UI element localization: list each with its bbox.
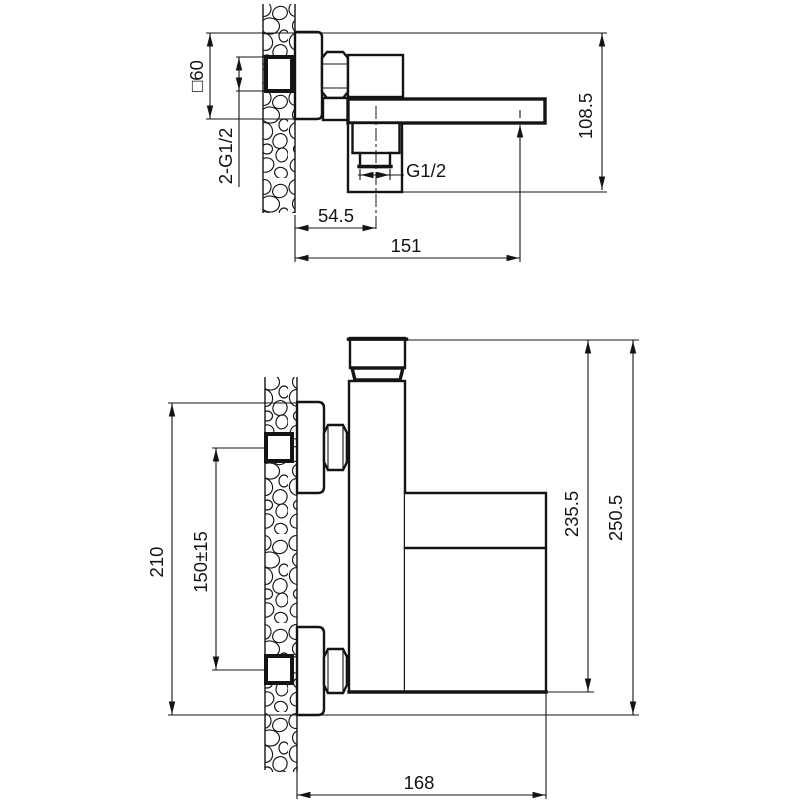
dim-inlet-thread-label: 2-G1/2 bbox=[215, 128, 236, 185]
dim-body-height-label: 235.5 bbox=[561, 491, 582, 537]
dim-wall-plate-span-label: 210 bbox=[146, 547, 167, 578]
extension-lines bbox=[212, 448, 266, 670]
top-view: □60 2-G1/2 G1/2 108.5 bbox=[186, 4, 607, 262]
dimension-inlet-thread: 2-G1/2 bbox=[215, 57, 265, 187]
body-upper-block bbox=[348, 55, 403, 97]
inlet-fitting-square bbox=[266, 57, 292, 91]
dimension-spout-reach-top: 151 bbox=[295, 235, 520, 258]
dim-overall-height-front-label: 250.5 bbox=[605, 495, 626, 541]
wall-section-hatch bbox=[263, 4, 295, 213]
dim-inlet-spacing-label: 150±15 bbox=[190, 531, 211, 593]
spout-bar bbox=[348, 99, 545, 123]
mounting-nut bbox=[322, 52, 348, 98]
handle-neck bbox=[352, 368, 403, 380]
front-view: 210 150±15 235.5 250.5 bbox=[146, 338, 639, 799]
dimension-inlet-spacing: 150±15 bbox=[190, 448, 266, 670]
inlet-fitting-square-upper bbox=[266, 434, 292, 461]
escutcheon-plate-upper bbox=[297, 402, 324, 493]
dim-overall-height-top-label: 108.5 bbox=[575, 93, 596, 139]
faucet-installation-drawing: □60 2-G1/2 G1/2 108.5 bbox=[0, 0, 800, 800]
extension-lines bbox=[236, 57, 265, 91]
escutcheon-plate-lower bbox=[297, 627, 324, 715]
dim-outlet-offset-label: 54.5 bbox=[318, 205, 354, 226]
dimension-outlet-offset: 54.5 bbox=[295, 205, 376, 262]
dim-spout-reach-top-label: 151 bbox=[391, 235, 422, 256]
dimension-overall-height-front: 250.5 bbox=[605, 340, 633, 715]
dim-flange-size-label: □60 bbox=[186, 60, 207, 92]
dim-spout-reach-front-label: 168 bbox=[404, 772, 435, 793]
dimension-spout-reach-front: 168 bbox=[297, 692, 546, 799]
inlet-fitting-square-lower bbox=[266, 656, 292, 683]
spout-housing-fill bbox=[405, 493, 546, 692]
nut-collar bbox=[323, 98, 348, 120]
escutcheon-plate bbox=[295, 32, 322, 119]
body-column bbox=[349, 381, 405, 692]
handle-head bbox=[350, 338, 405, 368]
technical-drawing-sheet: □60 2-G1/2 G1/2 108.5 bbox=[0, 0, 800, 800]
dim-outlet-thread-label: G1/2 bbox=[406, 160, 446, 181]
